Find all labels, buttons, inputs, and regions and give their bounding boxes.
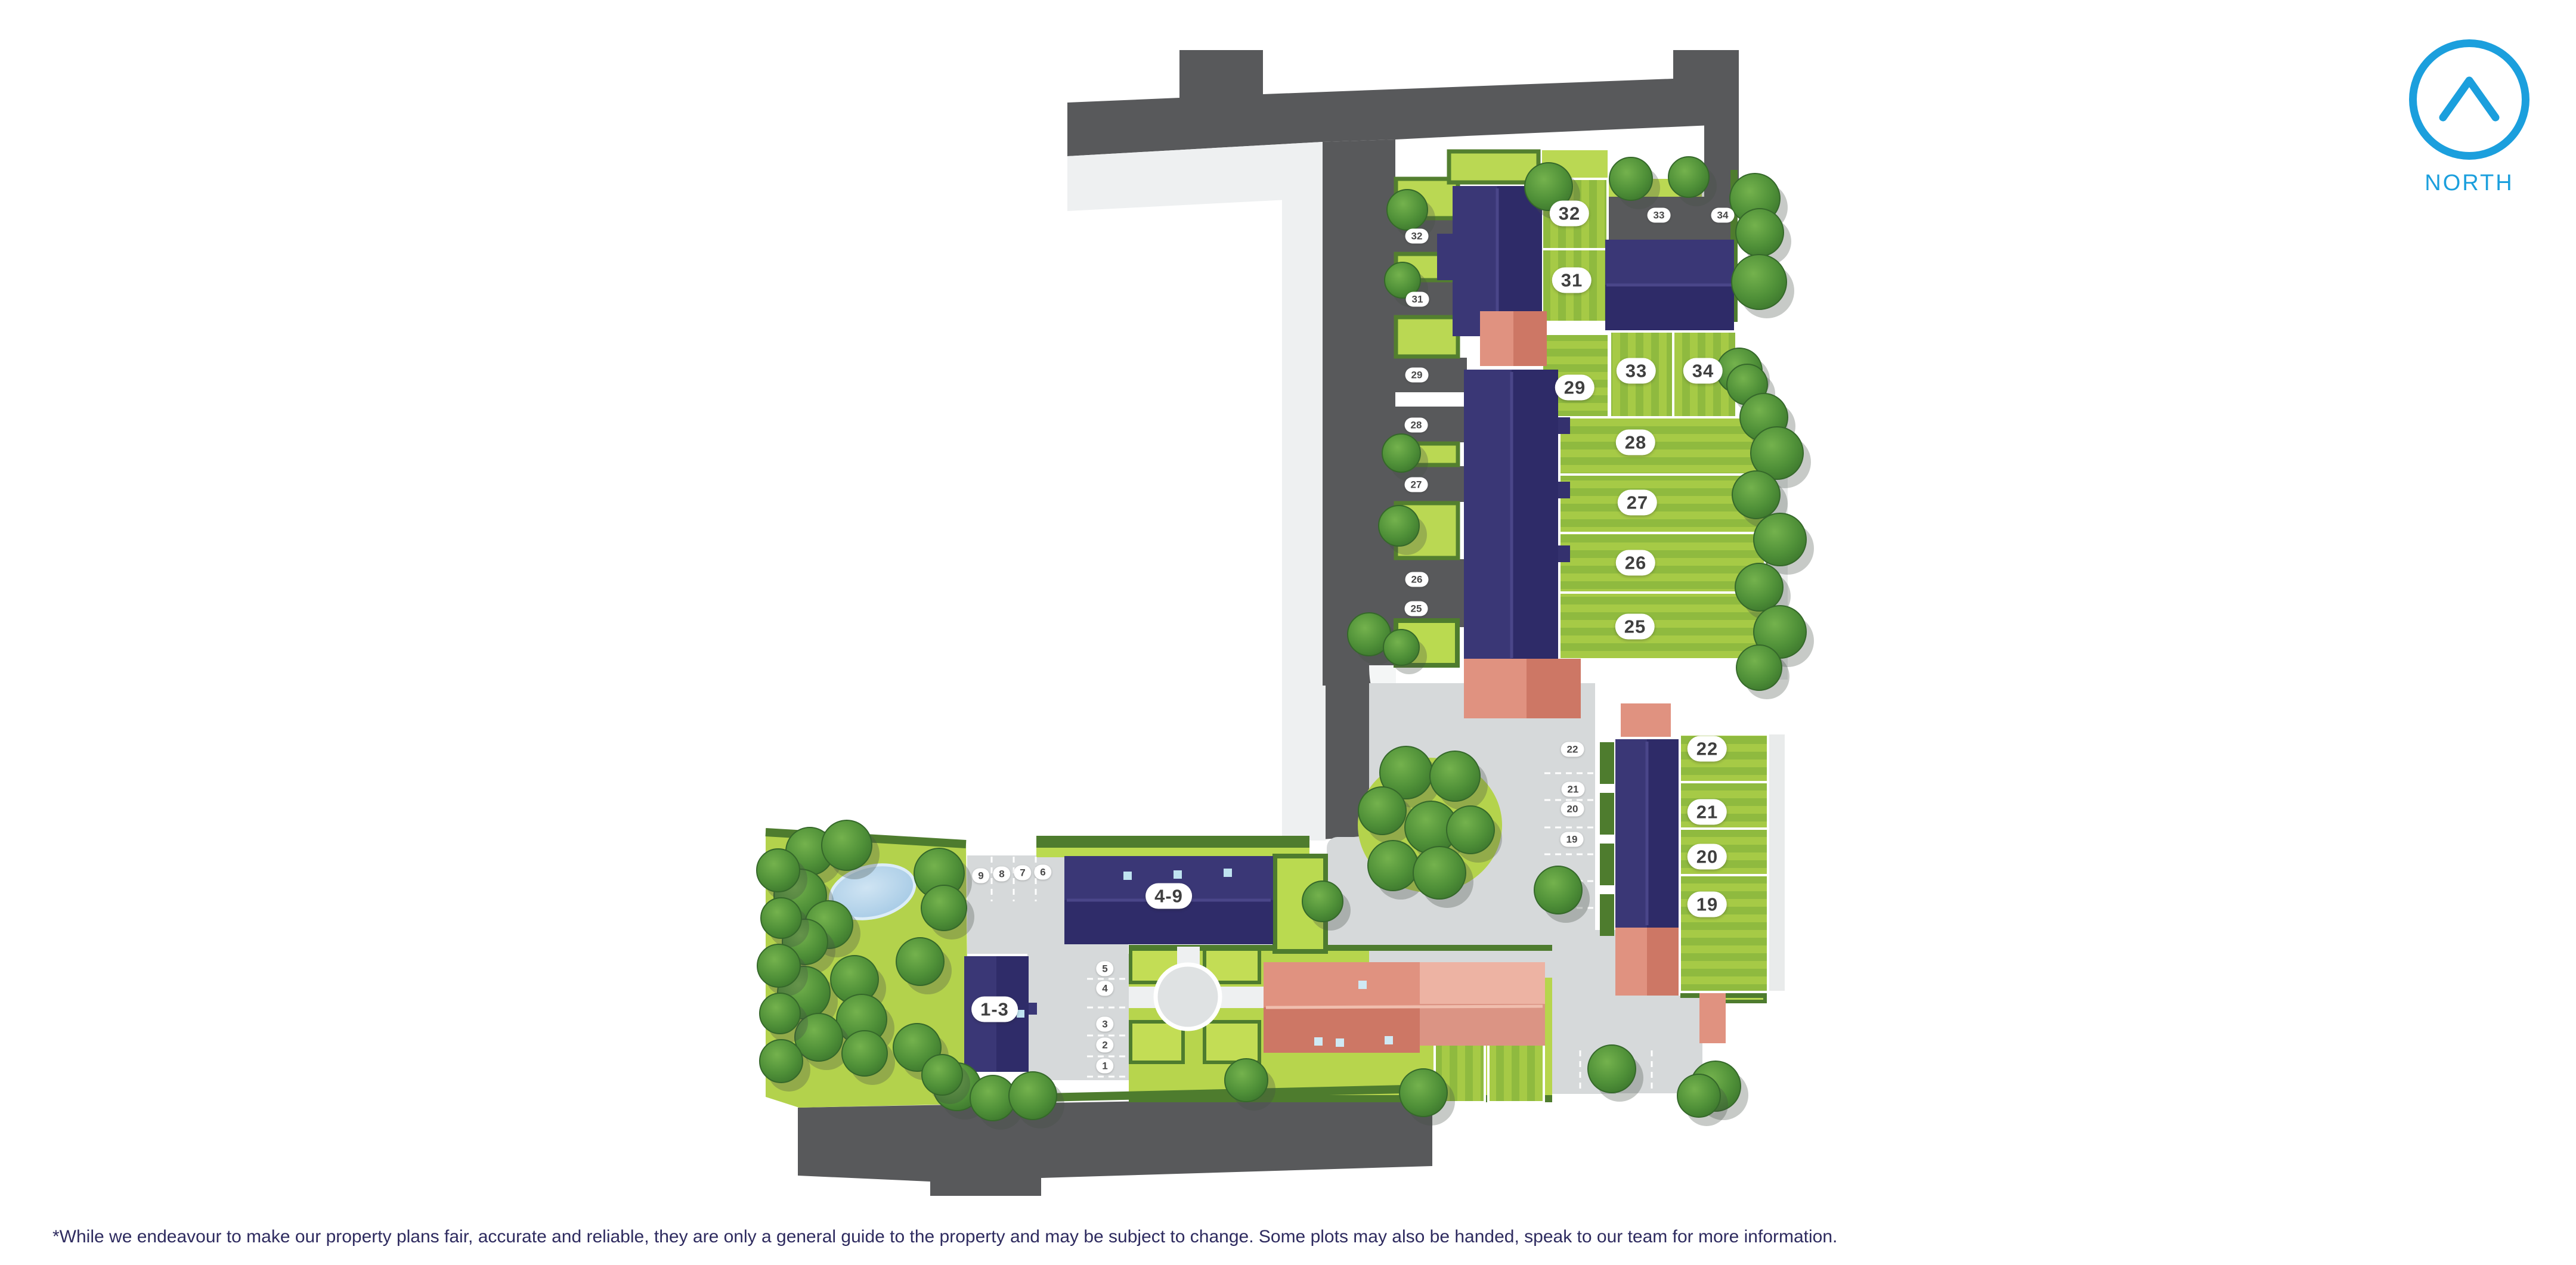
- bay-label-21: 21: [1562, 782, 1585, 797]
- tree-icon: [1225, 1059, 1268, 1102]
- bay-label-6: 6: [1034, 865, 1051, 880]
- building-plots-19-22: [1615, 739, 1679, 928]
- tree-icon: [1430, 751, 1480, 801]
- tree-icon: [1732, 255, 1787, 309]
- disclaimer-text: *While we endeavour to make our property…: [52, 1227, 1841, 1247]
- garage-court: [1621, 703, 1671, 737]
- tree-icon: [1736, 645, 1782, 690]
- tree-icon: [1735, 563, 1783, 611]
- north-arrow-icon: [2409, 39, 2529, 160]
- bay-label-3: 3: [1096, 1017, 1113, 1032]
- tree-icon: [1668, 157, 1709, 197]
- tree-icon: [1754, 513, 1806, 566]
- north-label: NORTH: [2408, 170, 2531, 196]
- plot-label-1-3[interactable]: 1-3: [971, 997, 1018, 1022]
- plot-label-27[interactable]: 27: [1618, 490, 1657, 516]
- house-19-22-end: [1615, 928, 1679, 996]
- tree-icon: [761, 898, 801, 938]
- bay-label-8: 8: [993, 867, 1010, 882]
- garden-19: [1680, 875, 1768, 992]
- tree-icon: [757, 944, 800, 987]
- tree-icon: [760, 993, 800, 1034]
- tree-icon: [822, 820, 872, 870]
- plot-label-4-9[interactable]: 4-9: [1145, 883, 1192, 909]
- bay-label-25: 25: [1405, 602, 1428, 616]
- plot-label-22[interactable]: 22: [1688, 736, 1727, 762]
- tree-icon: [1413, 847, 1466, 899]
- garage-mid: [1464, 659, 1581, 718]
- bay-label-22: 22: [1561, 742, 1584, 757]
- bay-label-33: 33: [1648, 208, 1671, 223]
- bay-label-1: 1: [1096, 1059, 1113, 1074]
- plot-label-32[interactable]: 32: [1550, 201, 1589, 227]
- bay-label-9: 9: [972, 869, 989, 883]
- tree-icon: [1383, 630, 1419, 665]
- tree-icon: [1302, 881, 1343, 922]
- bay-label-2: 2: [1096, 1038, 1113, 1053]
- plot-label-26[interactable]: 26: [1616, 550, 1655, 576]
- tree-icon: [760, 1040, 803, 1083]
- building-plots-25-29: [1464, 370, 1570, 661]
- garden-28: [1559, 417, 1765, 475]
- bay-label-5: 5: [1096, 962, 1113, 976]
- tree-icon: [1400, 1069, 1447, 1117]
- tree-icon: [921, 885, 967, 931]
- tree-icon: [1379, 506, 1419, 546]
- garage-top: [1480, 311, 1547, 366]
- bay-label-7: 7: [1014, 866, 1031, 880]
- plot-label-28[interactable]: 28: [1616, 430, 1655, 455]
- tree-icon: [922, 1055, 962, 1095]
- tree-icon: [1732, 471, 1780, 519]
- plot-label-20[interactable]: 20: [1688, 844, 1727, 870]
- tree-icon: [1368, 841, 1418, 891]
- garden-26: [1559, 533, 1765, 593]
- garage-bottom-right: [1699, 993, 1726, 1043]
- tree-icon: [1447, 806, 1494, 854]
- plot-label-19[interactable]: 19: [1688, 892, 1727, 917]
- tree-icon: [1382, 434, 1420, 472]
- plot-label-34[interactable]: 34: [1683, 358, 1723, 384]
- bay-label-32: 32: [1405, 229, 1429, 244]
- bay-label-26: 26: [1405, 572, 1429, 587]
- tree-icon: [1009, 1072, 1057, 1120]
- tree-icon: [1677, 1074, 1720, 1117]
- plot-label-31[interactable]: 31: [1552, 268, 1592, 293]
- tree-icon: [1588, 1045, 1636, 1093]
- site-plan-art: [0, 0, 2576, 1265]
- north-compass: NORTH: [2408, 39, 2531, 196]
- road-bottom: [798, 1096, 1432, 1196]
- bay-label-4: 4: [1096, 981, 1113, 996]
- bay-label-31: 31: [1406, 292, 1429, 307]
- tree-icon: [757, 849, 800, 892]
- existing-building: [1264, 962, 1545, 1053]
- tree-icon: [1736, 209, 1784, 256]
- plot-label-25[interactable]: 25: [1615, 614, 1655, 640]
- bay-label-28: 28: [1405, 418, 1428, 433]
- garden-25: [1559, 593, 1765, 659]
- building-plots-33-34: [1605, 240, 1734, 330]
- site-plan-page: 32312928272625333422212019987654321 3231…: [0, 0, 2576, 1265]
- plot-label-21[interactable]: 21: [1688, 799, 1727, 825]
- tree-icon: [1358, 787, 1406, 835]
- bay-label-34: 34: [1711, 208, 1735, 223]
- tree-icon: [1609, 157, 1652, 200]
- plot-label-29[interactable]: 29: [1555, 375, 1594, 401]
- road-top: [1067, 50, 1739, 156]
- bay-label-19: 19: [1561, 832, 1584, 847]
- bay-label-20: 20: [1561, 802, 1584, 817]
- tree-icon: [1387, 190, 1428, 230]
- bay-label-27: 27: [1405, 478, 1428, 492]
- tree-icon: [896, 938, 944, 985]
- bay-label-29: 29: [1405, 368, 1429, 383]
- tree-icon: [842, 1031, 887, 1076]
- tree-icon: [1534, 866, 1582, 914]
- plot-label-33[interactable]: 33: [1617, 358, 1656, 384]
